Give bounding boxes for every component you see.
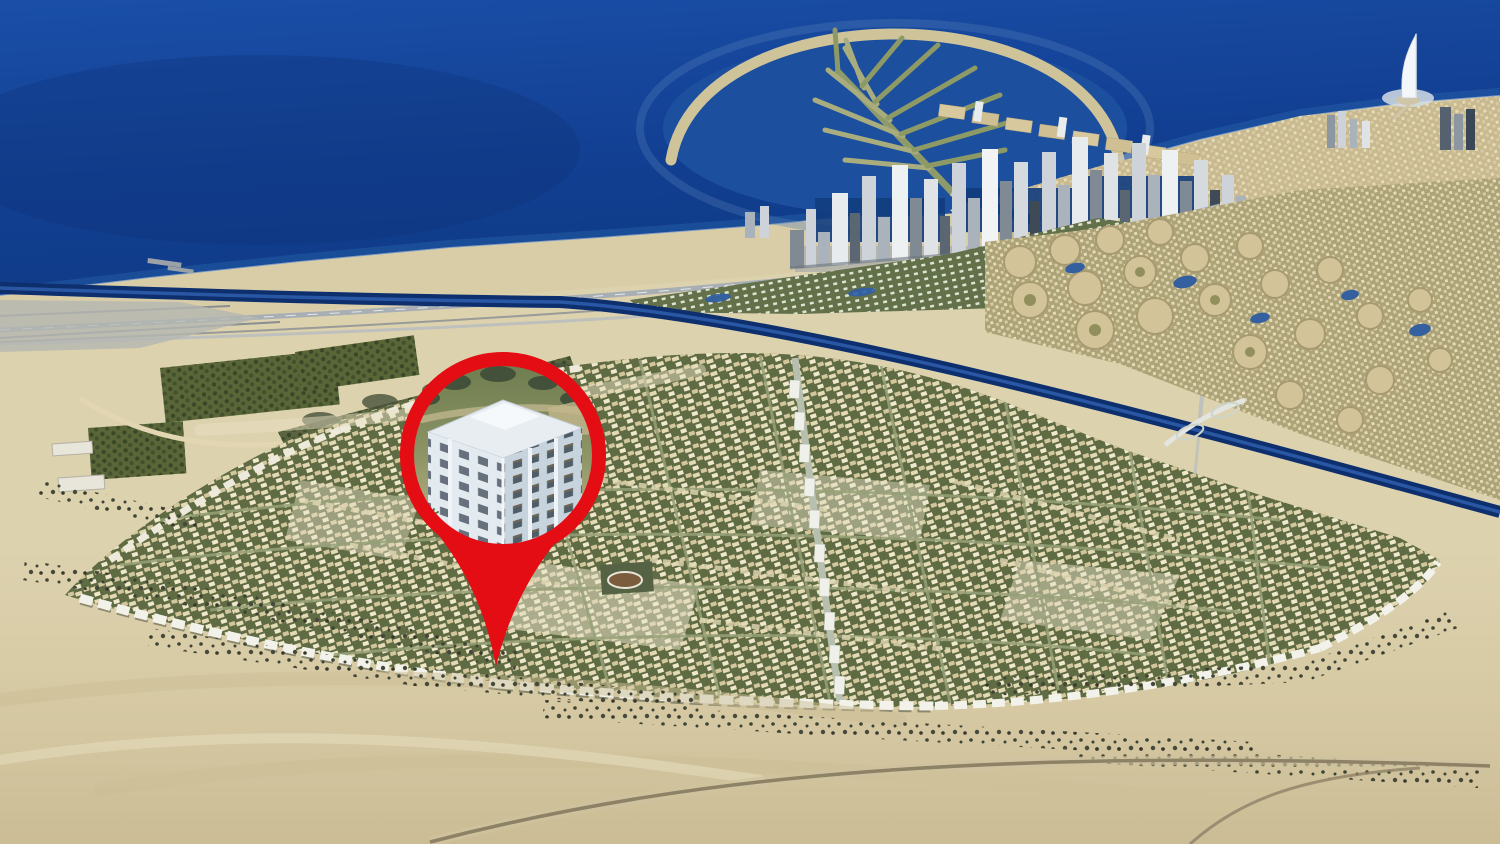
farm-sheds [52,441,93,456]
sports-field [600,561,654,595]
aerial-map-canvas [0,0,1500,844]
aerial-map-image [0,0,1500,844]
